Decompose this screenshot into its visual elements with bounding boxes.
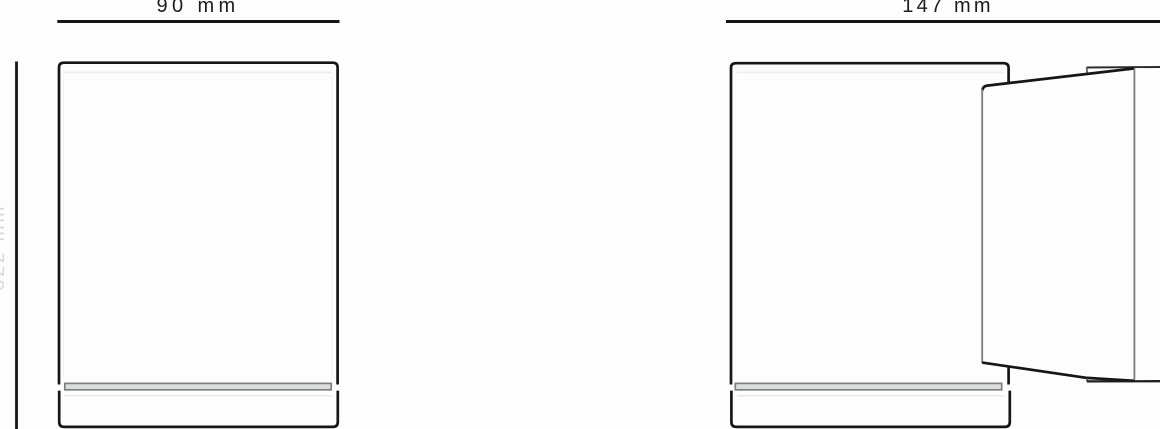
svg-text:322 mm: 322 mm <box>0 204 9 291</box>
svg-text:90 mm: 90 mm <box>156 0 239 17</box>
svg-text:147 mm: 147 mm <box>902 0 993 17</box>
